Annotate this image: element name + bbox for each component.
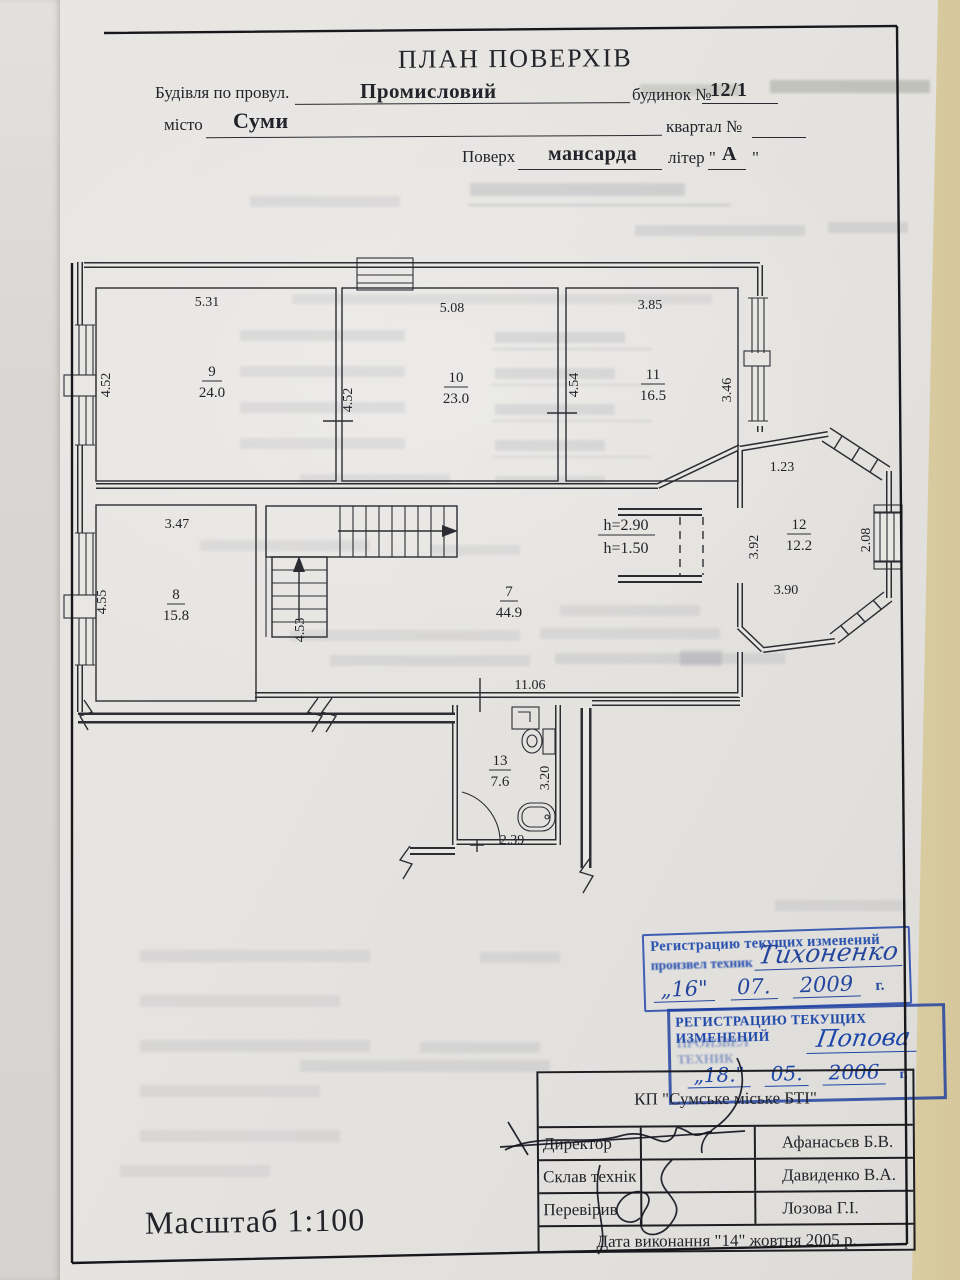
underlying-sheet-edge	[0, 0, 62, 1280]
person-name: Лозова Г.І.	[756, 1192, 913, 1224]
stamp1-day: „16"	[653, 976, 715, 1003]
house-underline	[702, 103, 778, 104]
page-title: ПЛАН ПОВЕРХІВ	[398, 43, 633, 75]
stamp1-month: 07.	[730, 974, 778, 1000]
table-row-director: Директор Афанасьєв Б.В.	[539, 1126, 913, 1162]
floor-underline	[518, 169, 662, 170]
quarter-label: квартал №	[666, 117, 742, 137]
stamp1-year-suffix: г.	[875, 978, 884, 994]
stamp1-date: „16" 07. 2009 г.	[653, 970, 902, 1003]
letter-suffix: "	[752, 148, 759, 168]
execution-date: Дата виконання "14" жовтня 2005 р.	[539, 1225, 913, 1257]
quarter-underline	[752, 137, 806, 138]
house-label: будинок №	[632, 85, 712, 105]
scale-label: Масштаб 1:100	[145, 1201, 366, 1241]
scanned-floor-plan-page: { "header": { "title": "ПЛАН ПОВЕРХІВ", …	[0, 0, 960, 1280]
person-name: Афанасьєв Б.В.	[756, 1126, 913, 1158]
stamp1-technician-signature: Тихоненко	[754, 936, 906, 971]
stamp1-line2: произвел техник	[651, 955, 753, 974]
role-label: Перевірив	[539, 1194, 642, 1226]
person-name: Давиденко В.А.	[756, 1159, 913, 1191]
city-label: місто	[164, 115, 203, 135]
table-row-technician: Склав технік Давиденко В.А.	[539, 1159, 913, 1195]
signature-cell	[642, 1193, 756, 1225]
stamp1-year: 2009	[792, 971, 860, 998]
city-value: Суми	[233, 108, 289, 134]
letter-value: А	[722, 143, 737, 166]
title-block: КП "Сумське міське БТІ" Директор Афанась…	[536, 1069, 915, 1254]
registration-stamp-2009: Регистрацию текущих изменений произвел т…	[642, 926, 912, 1012]
role-label: Склав технік	[539, 1161, 642, 1193]
table-row-verifier: Перевірив Лозова Г.І.	[539, 1192, 913, 1228]
letter-underline	[708, 169, 746, 170]
organization-name: КП "Сумське міське БТІ"	[538, 1071, 912, 1129]
signature-cell	[642, 1160, 756, 1192]
floor-label: Поверх	[462, 147, 515, 167]
building-value: Промисловий	[360, 79, 497, 104]
floor-value: мансарда	[548, 143, 637, 166]
letter-label: літер "	[668, 148, 716, 168]
signature-cell	[642, 1127, 756, 1159]
stamp2-technician-signature: Попова	[806, 1023, 920, 1054]
building-label: Будівля по провул.	[155, 83, 289, 103]
role-label: Директор	[539, 1128, 642, 1160]
house-value: 12/1	[710, 79, 748, 102]
